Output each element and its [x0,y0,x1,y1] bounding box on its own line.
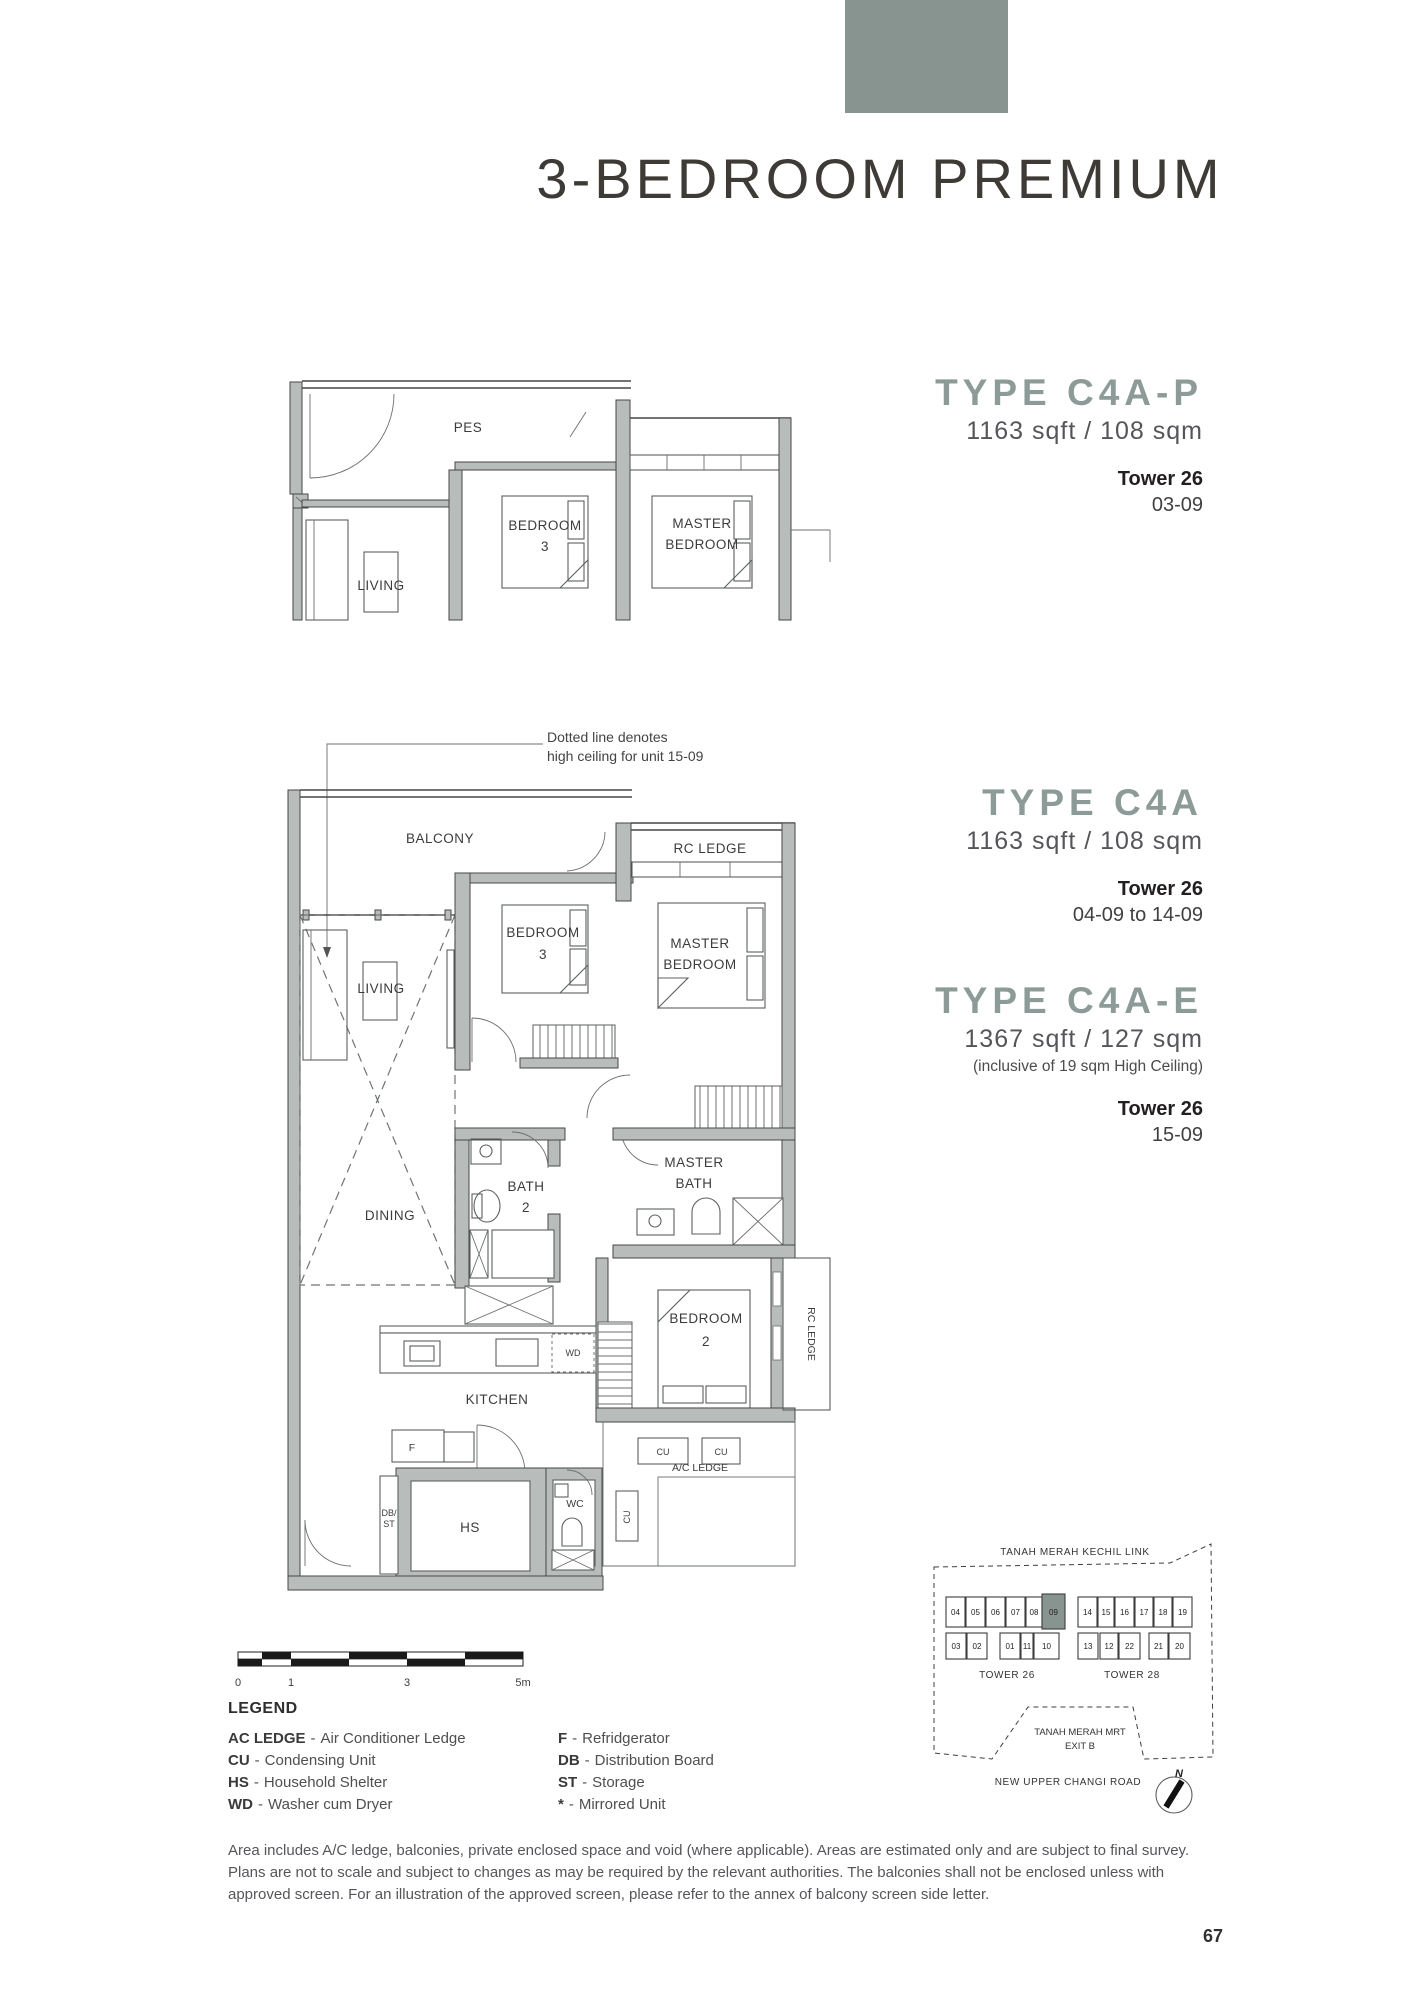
rc-ledge-side-strip [771,1258,830,1410]
label-balcony: BALCONY [406,831,474,846]
unit-06: 06 [991,1608,1000,1617]
label-ac-ledge: A/C LEDGE [672,1462,728,1474]
label-kitchen: KITCHEN [466,1392,529,1407]
scale-tick-3: 3 [404,1677,410,1689]
unit-10: 10 [1042,1642,1051,1651]
legend-item-cu: CU-Condensing Unit [228,1750,558,1772]
label-living-top: LIVING [357,578,404,593]
master-wardrobe [695,1086,782,1128]
unit-18: 18 [1159,1608,1168,1617]
label-cu-3: CU [622,1511,632,1524]
scale-tick-0: 0 [235,1677,241,1689]
label-bedroom3-top-num: 3 [541,539,549,554]
unit-09: 09 [1049,1608,1058,1617]
kitchen-counter [380,1326,596,1373]
north-label: N [1175,1768,1184,1780]
unit-16: 16 [1120,1608,1129,1617]
unit-17: 17 [1140,1608,1149,1617]
label-wc: WC [566,1498,584,1510]
label-dining: DINING [365,1208,415,1223]
unit-02: 02 [973,1642,982,1651]
label-wd: WD [566,1348,581,1358]
void-box [465,1286,553,1324]
legend-item-mirrored: *-Mirrored Unit [558,1794,714,1816]
unit-13: 13 [1084,1642,1093,1651]
label-st: ST [383,1519,395,1529]
label-bath2-2: 2 [522,1200,530,1215]
label-master-bath-1: MASTER [664,1155,723,1170]
unit-14: 14 [1083,1608,1092,1617]
label-bedroom3-1: BEDROOM [506,925,579,940]
unit-15: 15 [1102,1608,1111,1617]
tv-console [447,950,454,1048]
tower28-units: 14 15 16 17 18 19 13 12 22 21 20 [1078,1597,1192,1659]
page-number: 67 [1203,1926,1223,1947]
label-master-top-1: MASTER [672,516,731,531]
label-bedroom2-1: BEDROOM [669,1311,742,1326]
wc-shaft [552,1550,594,1570]
tower26-units: 04 05 06 07 08 09 03 02 01 11 10 [946,1594,1065,1659]
legend-item-ac-ledge: AC LEDGE-Air Conditioner Ledge [228,1728,558,1750]
label-bedroom3-2: 3 [539,947,547,962]
unit-01: 01 [1006,1642,1015,1651]
rc-ledge-window-band [632,862,782,877]
legend-item-f: F-Refridgerator [558,1728,714,1750]
scale-tick-5m: 5m [515,1677,530,1689]
floor-plan-type-c4ap: PES LIVING BEDROOM 3 MASTER BEDROOM [290,381,830,620]
unit-07: 07 [1011,1608,1020,1617]
north-compass: N [1156,1768,1192,1813]
label-cu-1: CU [657,1447,670,1457]
label-cu-2: CU [715,1447,728,1457]
unit-20: 20 [1175,1642,1184,1651]
unit-05: 05 [971,1608,980,1617]
bedroom2 [596,1258,795,1422]
label-db: DB/ [381,1508,397,1518]
label-master-1: MASTER [670,936,729,951]
scale-tick-1: 1 [288,1677,294,1689]
ac-ledge [603,1420,795,1566]
label-bedroom2-2: 2 [702,1334,710,1349]
unit-04: 04 [951,1608,960,1617]
label-living: LIVING [357,981,404,996]
shaft [470,1230,488,1278]
label-fridge: F [409,1442,415,1454]
master-bed-main [658,903,765,1008]
master-window-band [630,455,779,470]
disclaimer-text: Area includes A/C ledge, balconies, priv… [228,1840,1238,1906]
linen-closet [492,1230,554,1278]
bedroom3-wardrobe [533,1025,615,1058]
legend-item-hs: HS-Household Shelter [228,1772,558,1794]
label-rc-ledge-top: RC LEDGE [673,841,746,856]
label-tower26: TOWER 26 [979,1670,1035,1681]
fridge [392,1430,474,1462]
legend: LEGEND AC LEDGE-Air Conditioner Ledge CU… [228,1700,1088,1816]
unit-12: 12 [1105,1642,1114,1651]
unit-22: 22 [1125,1642,1134,1651]
scale-bar: 0 1 3 5m [235,1652,531,1689]
unit-08: 08 [1030,1608,1039,1617]
sofa [306,520,348,620]
unit-19: 19 [1178,1608,1187,1617]
label-tower28: TOWER 28 [1104,1670,1160,1681]
floor-plan-type-c4a: BALCONY RC LEDGE LIVING BEDROOM 3 MASTER… [288,790,830,1590]
label-bath2-1: BATH [507,1179,544,1194]
legend-title: LEGEND [228,1700,1088,1718]
label-bedroom3-top: BEDROOM [508,518,581,533]
label-pes: PES [454,420,483,435]
unit-21: 21 [1154,1642,1163,1651]
label-hs: HS [460,1520,480,1535]
legend-item-db: DB-Distribution Board [558,1750,714,1772]
label-rc-ledge-side: RC LEDGE [805,1307,817,1361]
legend-item-wd: WD-Washer cum Dryer [228,1794,558,1816]
label-master-2: BEDROOM [663,957,736,972]
label-master-top-2: BEDROOM [665,537,738,552]
unit-03: 03 [952,1642,961,1651]
brochure-page: 3-BEDROOM PREMIUM TYPE C4A-P 1163 sqft /… [0,0,1414,2000]
label-road-top: TANAH MERAH KECHIL LINK [1000,1547,1149,1558]
label-master-bath-2: BATH [675,1176,712,1191]
high-ceiling-dashed-zone [300,915,455,1285]
unit-11: 11 [1023,1642,1032,1651]
legend-item-st: ST-Storage [558,1772,714,1794]
